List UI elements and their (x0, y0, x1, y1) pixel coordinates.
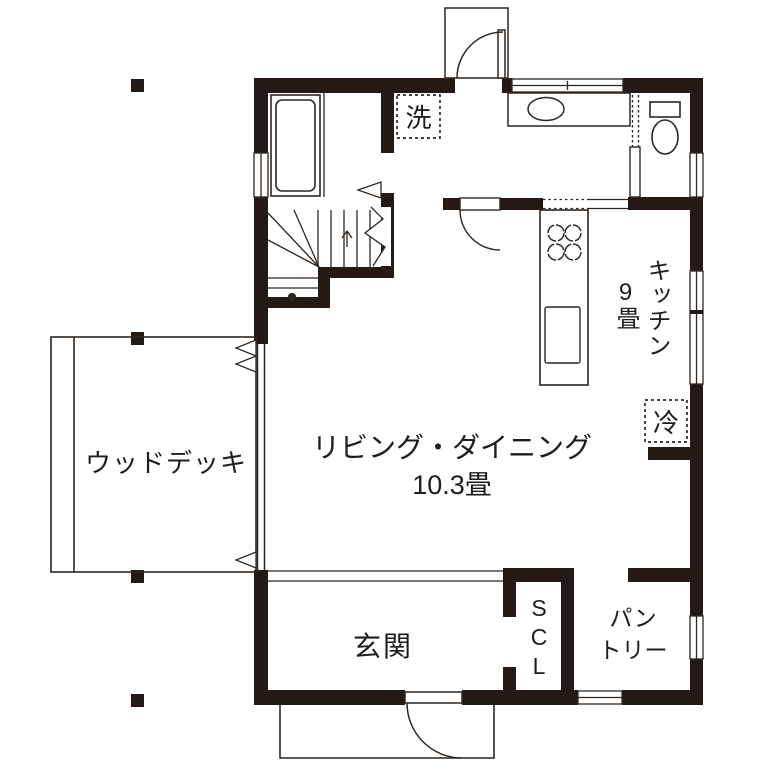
floor-plan: リビング・ダイニング 10.3畳 キッチン 9畳 ウッドデッキ 玄関 SCL パ… (0, 0, 768, 769)
back-door (445, 8, 508, 78)
window-pantry-bottom (578, 691, 622, 704)
window-bathroom-left (254, 153, 268, 197)
window-pantry-right (690, 616, 703, 659)
entrance-door (405, 692, 462, 758)
kitchen-counter (540, 210, 588, 385)
washroom-door (460, 198, 500, 250)
entrance-label: 玄関 (320, 625, 446, 665)
pantry-label: パン トリー (590, 602, 676, 666)
kitchen-size: 9畳 (608, 279, 643, 343)
living-dining-label: リビング・ダイニング (290, 426, 614, 466)
porch-outline (280, 705, 494, 758)
window-top (512, 79, 623, 92)
shoe-closet-label: SCL (525, 595, 552, 685)
bathtub-icon (271, 93, 324, 197)
window-toilet-right (690, 153, 703, 197)
toilet-icon (650, 102, 680, 154)
post-markers (131, 79, 144, 707)
living-dining-size: 10.3畳 (290, 463, 614, 502)
toilet-sliding-door (630, 95, 640, 197)
washbasin-icon (508, 93, 630, 126)
wood-deck-label: ウッドデッキ (66, 443, 266, 480)
laundry-label: 洗 (397, 95, 440, 138)
refrigerator-label: 冷 (645, 400, 687, 442)
kitchen-label: キッチン (639, 258, 674, 368)
bathroom-door-marker (358, 182, 381, 198)
window-kitchen-right (690, 271, 703, 384)
